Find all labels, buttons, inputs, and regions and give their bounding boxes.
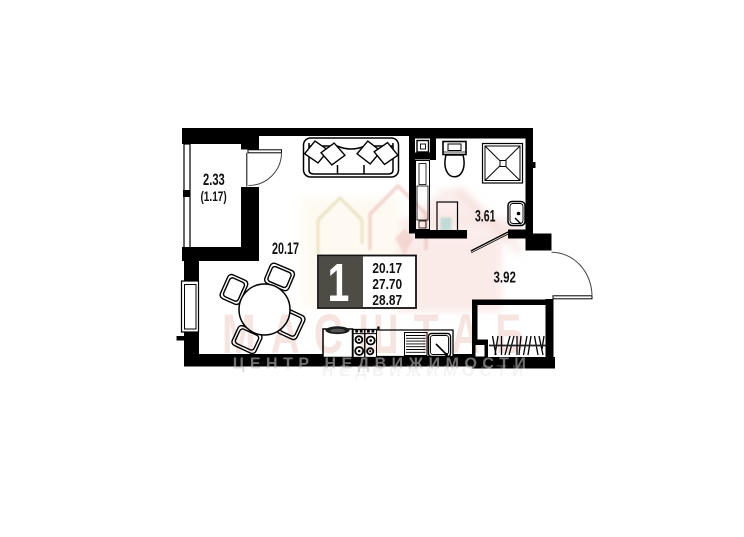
svg-text:20.17: 20.17 bbox=[272, 240, 299, 258]
svg-text:ЦЕНТР НЕДВИЖИМОСТИ: ЦЕНТР НЕДВИЖИМОСТИ bbox=[233, 355, 532, 372]
svg-text:27.70: 27.70 bbox=[372, 276, 402, 293]
svg-text:3.92: 3.92 bbox=[493, 267, 516, 285]
svg-text:2.33: 2.33 bbox=[203, 170, 225, 189]
svg-text:3.61: 3.61 bbox=[475, 207, 496, 225]
svg-text:20.17: 20.17 bbox=[372, 259, 402, 276]
svg-text:(1.17): (1.17) bbox=[200, 188, 226, 204]
